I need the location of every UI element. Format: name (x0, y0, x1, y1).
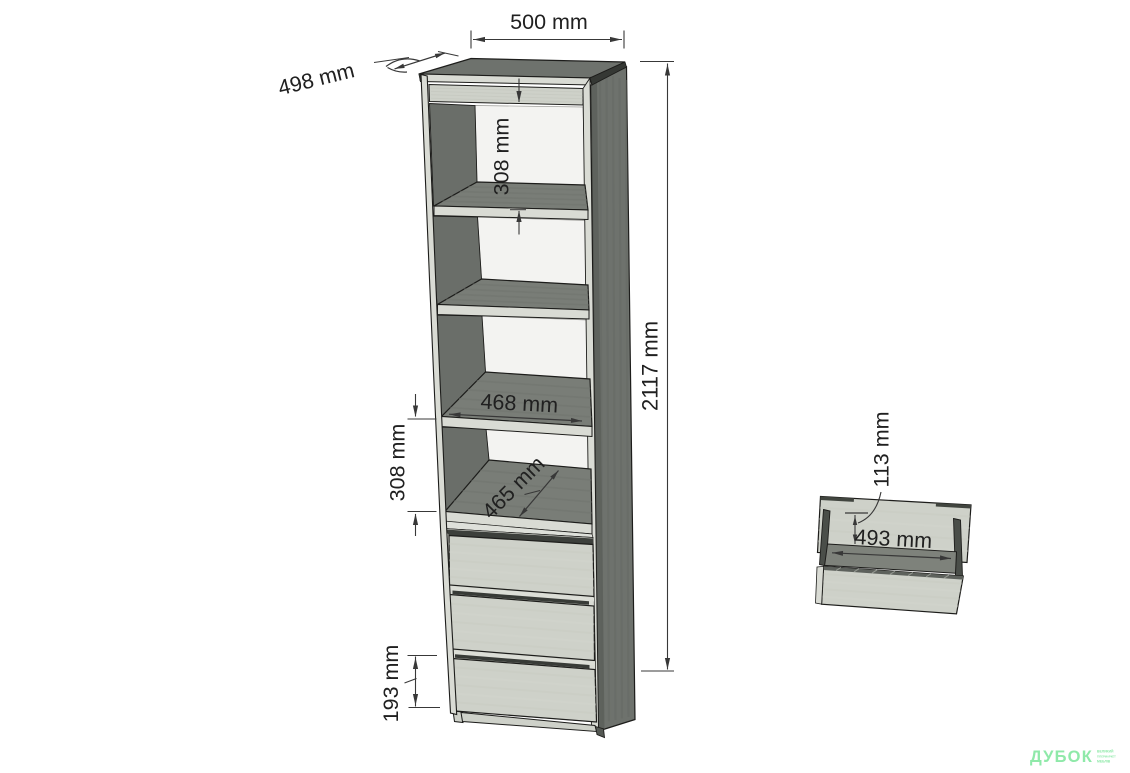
svg-text:МЕБЛІВ: МЕБЛІВ (1097, 760, 1111, 764)
svg-text:500 mm: 500 mm (510, 10, 588, 34)
svg-text:ДУБОК: ДУБОК (1030, 748, 1093, 766)
svg-text:308 mm: 308 mm (386, 424, 410, 502)
svg-text:308 mm: 308 mm (490, 118, 514, 196)
svg-text:2117 mm: 2117 mm (638, 321, 663, 411)
svg-text:193 mm: 193 mm (379, 645, 403, 723)
svg-text:ВЕЛИКИЙ: ВЕЛИКИЙ (1097, 750, 1114, 754)
svg-text:493 mm: 493 mm (854, 525, 933, 553)
svg-text:498 mm: 498 mm (276, 58, 357, 100)
svg-text:ГІПЕРМАРКЕТ: ГІПЕРМАРКЕТ (1097, 755, 1116, 759)
svg-text:113 mm: 113 mm (870, 411, 894, 487)
svg-text:468 mm: 468 mm (480, 389, 559, 417)
